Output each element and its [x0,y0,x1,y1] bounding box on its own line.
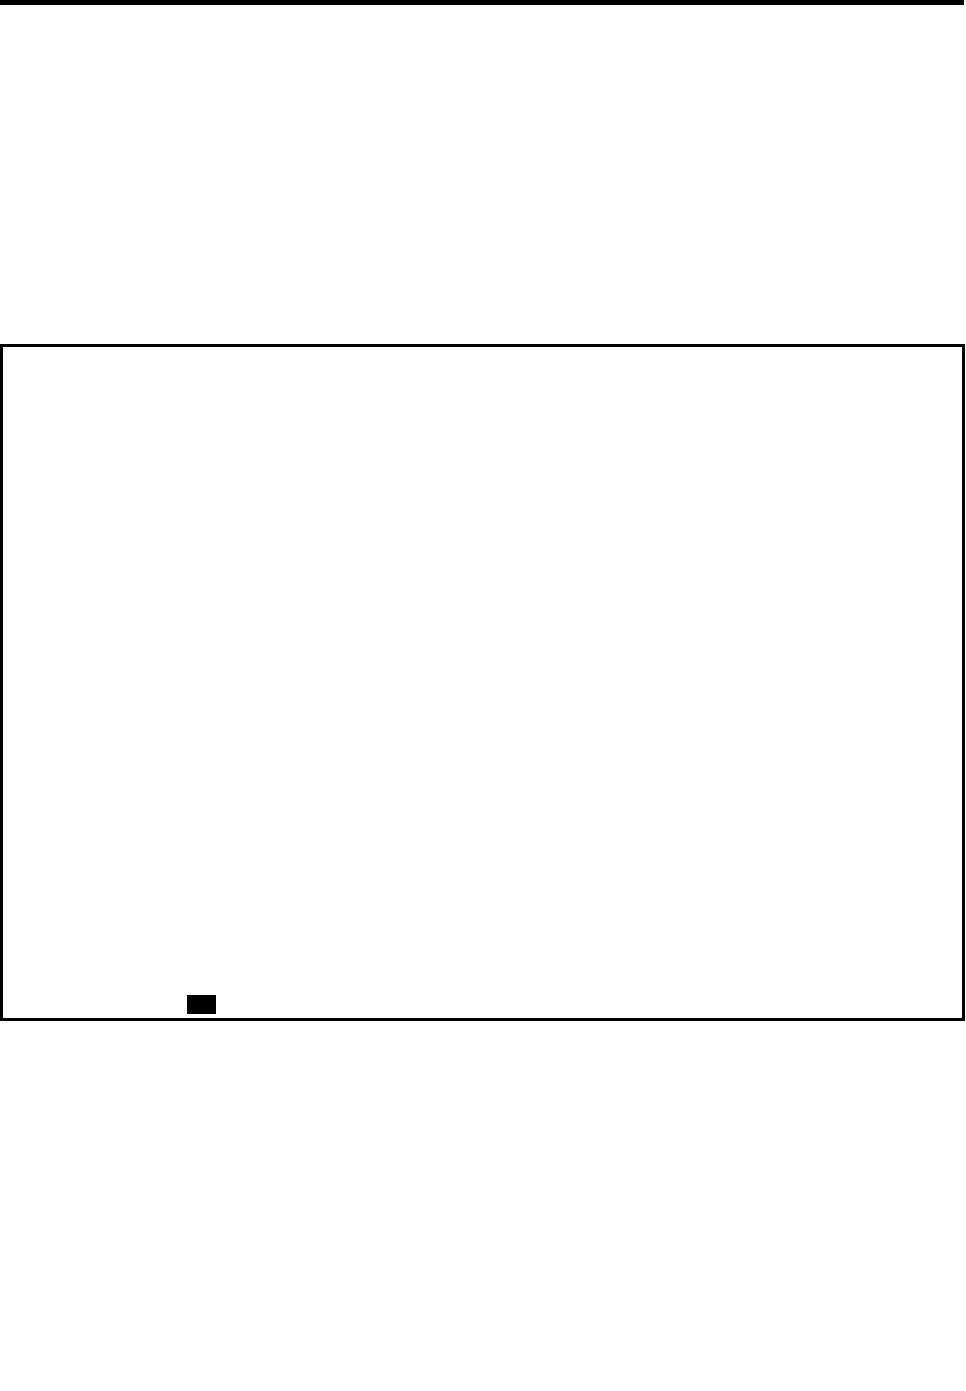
filled-black-rectangle [187,995,216,1014]
top-horizontal-rule [0,0,964,5]
document-page [0,0,966,1391]
empty-figure-frame [0,344,965,1021]
